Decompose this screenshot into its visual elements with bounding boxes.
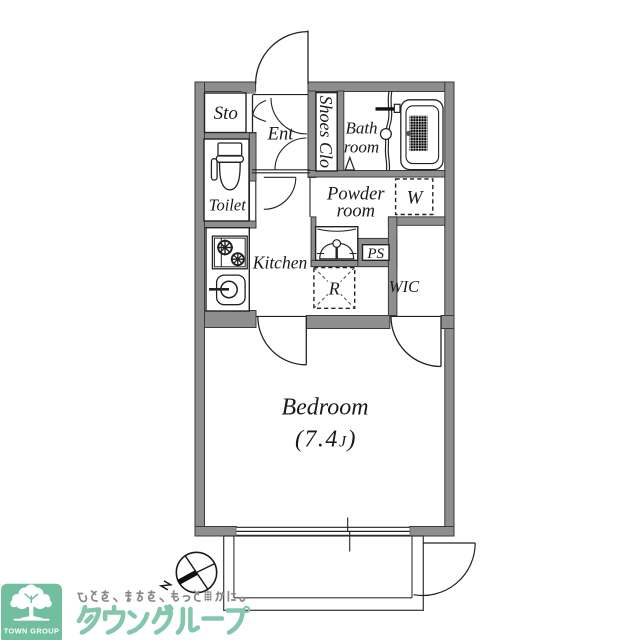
svg-text:WIC: WIC xyxy=(389,277,420,296)
svg-text:Shoes Clo: Shoes Clo xyxy=(316,96,336,169)
svg-text:room: room xyxy=(344,138,379,157)
svg-text:W: W xyxy=(407,188,425,209)
svg-text:(7.4J): (7.4J) xyxy=(295,427,357,453)
svg-text:Kitchen: Kitchen xyxy=(252,252,308,272)
svg-text:Toilet: Toilet xyxy=(209,196,246,215)
svg-text:R: R xyxy=(328,279,340,299)
svg-text:PS: PS xyxy=(366,246,384,262)
svg-text:Ent: Ent xyxy=(267,125,295,145)
svg-text:Bath: Bath xyxy=(345,119,377,138)
svg-text:room: room xyxy=(337,202,375,222)
svg-text:Sto: Sto xyxy=(214,103,238,124)
svg-text:Bedroom: Bedroom xyxy=(281,395,368,421)
svg-text:TOWN GROUP: TOWN GROUP xyxy=(4,627,60,636)
